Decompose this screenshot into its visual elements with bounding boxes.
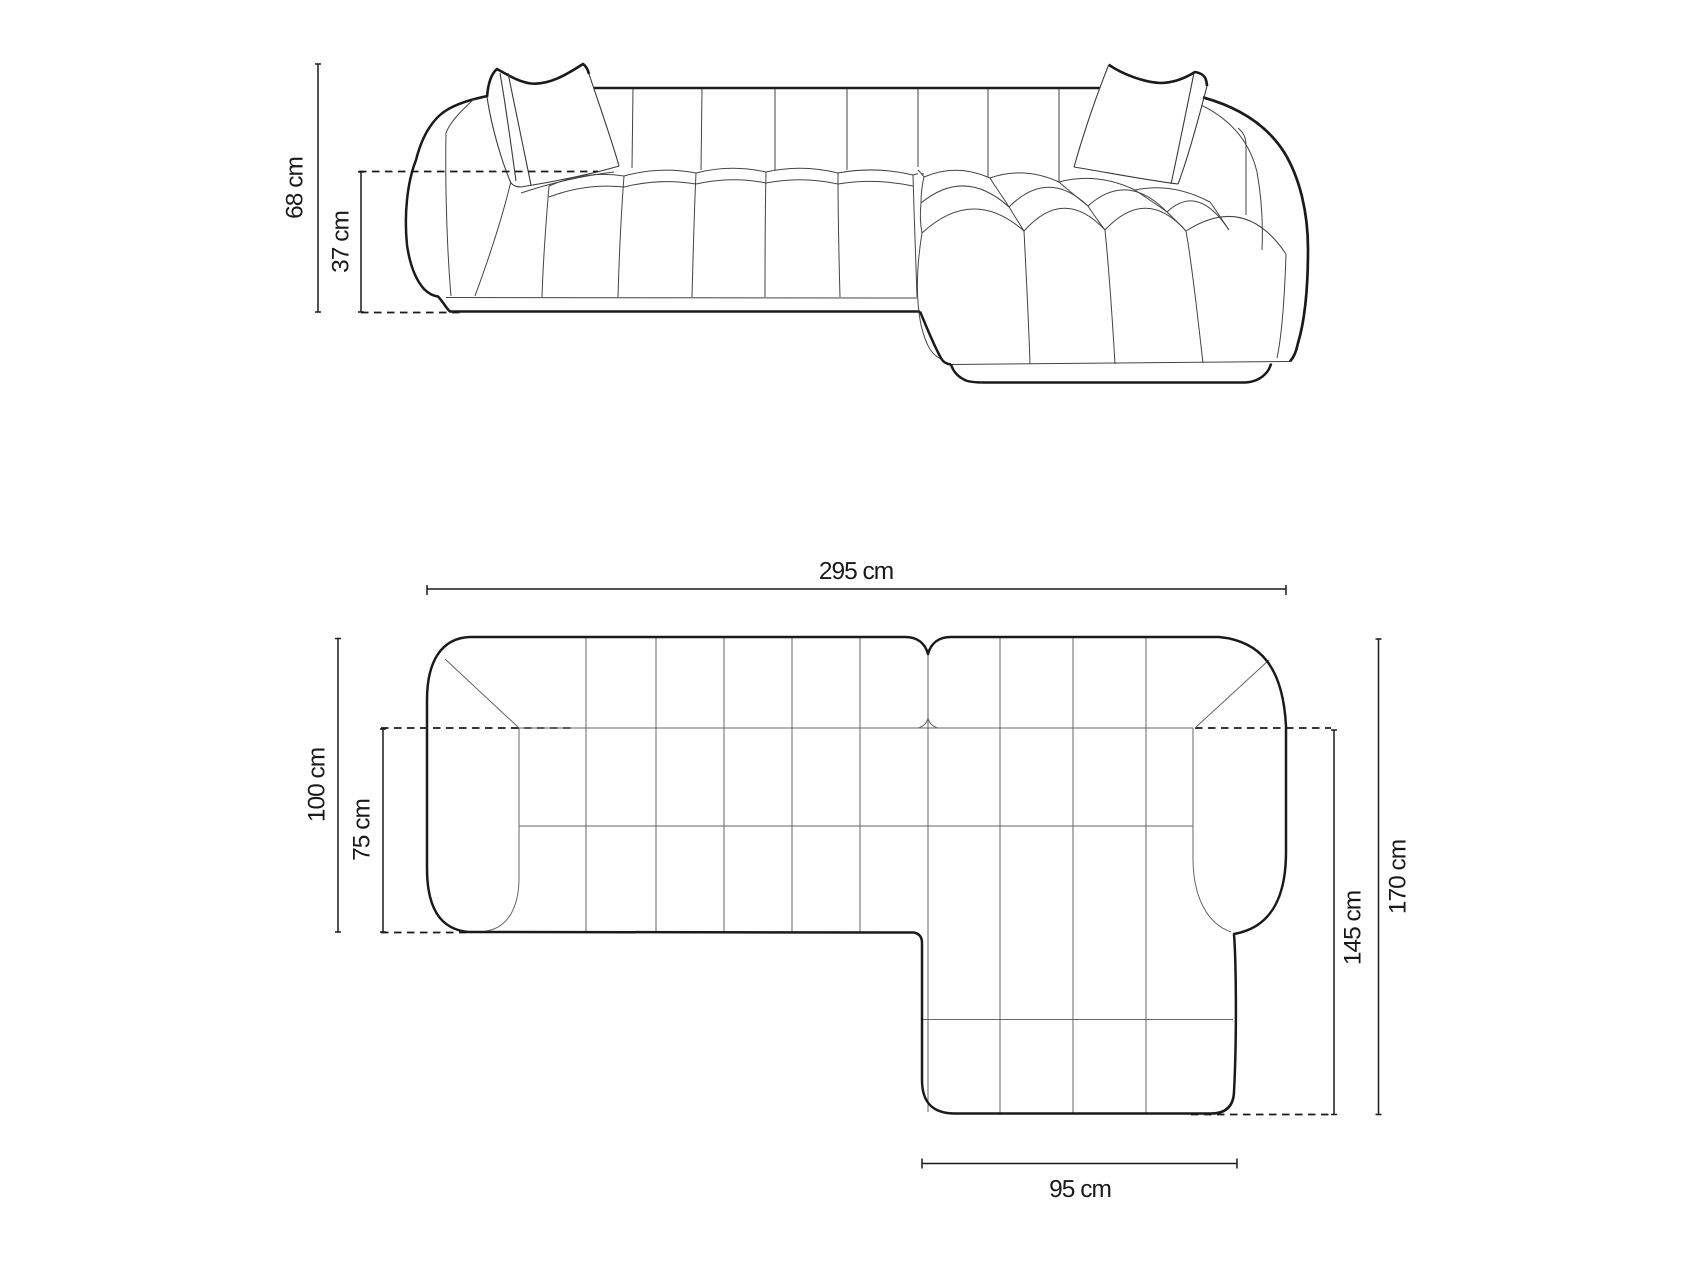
svg-text:170 cm: 170 cm <box>1384 840 1411 914</box>
svg-text:37 cm: 37 cm <box>327 211 354 273</box>
svg-text:145 cm: 145 cm <box>1339 891 1366 965</box>
svg-text:75 cm: 75 cm <box>348 799 375 861</box>
svg-text:68 cm: 68 cm <box>281 157 308 219</box>
svg-text:95 cm: 95 cm <box>1049 1176 1111 1203</box>
svg-text:295 cm: 295 cm <box>819 558 893 585</box>
svg-text:100 cm: 100 cm <box>303 748 330 822</box>
